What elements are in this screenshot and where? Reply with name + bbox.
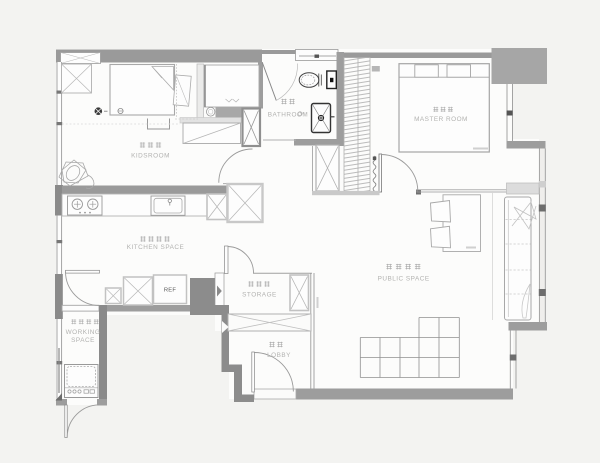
svg-text:MASTER ROOM: MASTER ROOM — [414, 116, 468, 123]
svg-text:STORAGE: STORAGE — [242, 292, 277, 299]
svg-text:KITCHEN SPACE: KITCHEN SPACE — [127, 244, 185, 251]
svg-text:KIDSROOM: KIDSROOM — [131, 153, 170, 160]
svg-text:BATHROOM: BATHROOM — [268, 112, 308, 119]
svg-text:PUBLIC SPACE: PUBLIC SPACE — [378, 276, 430, 283]
svg-text:WORKING: WORKING — [66, 329, 101, 336]
svg-text:LOBBY: LOBBY — [267, 352, 291, 359]
svg-text:SPACE: SPACE — [71, 337, 95, 344]
svg-text:REF: REF — [164, 288, 176, 294]
